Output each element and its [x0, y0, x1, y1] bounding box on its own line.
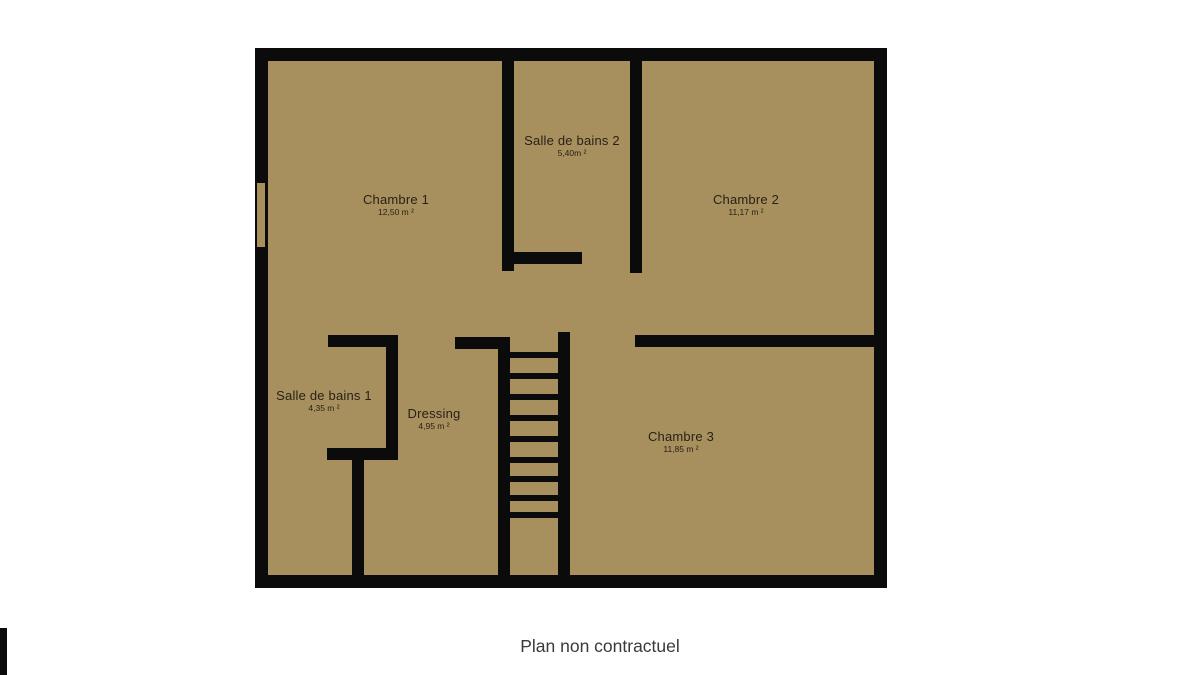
- sdb2-left-wall: [502, 61, 514, 271]
- stair-step-8: [510, 495, 558, 501]
- chambre3-top-wall: [635, 335, 887, 347]
- sdb1-bottom-stub: [327, 448, 398, 460]
- stair-step-5: [510, 436, 558, 442]
- room-area: 4,35 m ²: [308, 404, 339, 413]
- room-name: Salle de bains 1: [276, 389, 372, 403]
- stair-step-4: [510, 415, 558, 421]
- sdb2-right-wall: [630, 61, 642, 273]
- room-area: 11,17 m ²: [728, 208, 763, 217]
- room-label-dressing: Dressing4,95 m ²: [408, 407, 461, 431]
- stair-step-9: [510, 512, 558, 518]
- room-label-salle-de-bains-1: Salle de bains 14,35 m ²: [276, 389, 372, 413]
- sdb2-bottom-stub: [502, 252, 582, 264]
- stair-step-6: [510, 457, 558, 463]
- room-name: Chambre 1: [363, 193, 429, 207]
- floorplan-canvas: Plan non contractuel Chambre 112,50 m ²S…: [0, 0, 1200, 675]
- stair-step-3: [510, 394, 558, 400]
- room-name: Chambre 3: [648, 430, 714, 444]
- floorplan: [255, 48, 887, 588]
- corridor-wall: [352, 460, 364, 575]
- sdb1-right-wall: [386, 335, 398, 460]
- stair-left-wall: [498, 337, 510, 575]
- room-name: Salle de bains 2: [524, 134, 620, 148]
- window: [256, 182, 266, 248]
- room-label-salle-de-bains-2: Salle de bains 25,40m ²: [524, 134, 620, 158]
- room-area: 12,50 m ²: [378, 208, 414, 217]
- room-label-chambre-3: Chambre 311,85 m ²: [648, 430, 714, 454]
- stair-step-2: [510, 373, 558, 379]
- room-area: 5,40m ²: [558, 149, 587, 158]
- room-area: 4,95 m ²: [418, 422, 449, 431]
- room-label-chambre-1: Chambre 112,50 m ²: [363, 193, 429, 217]
- room-name: Dressing: [408, 407, 461, 421]
- room-name: Chambre 2: [713, 193, 779, 207]
- stair-step-1: [510, 352, 558, 358]
- plan-disclaimer: Plan non contractuel: [0, 636, 1200, 657]
- stair-step-7: [510, 476, 558, 482]
- room-label-chambre-2: Chambre 211,17 m ²: [713, 193, 779, 217]
- room-area: 11,85 m ²: [663, 445, 698, 454]
- edge-artifact: [0, 628, 7, 675]
- stair-right-wall: [558, 332, 570, 575]
